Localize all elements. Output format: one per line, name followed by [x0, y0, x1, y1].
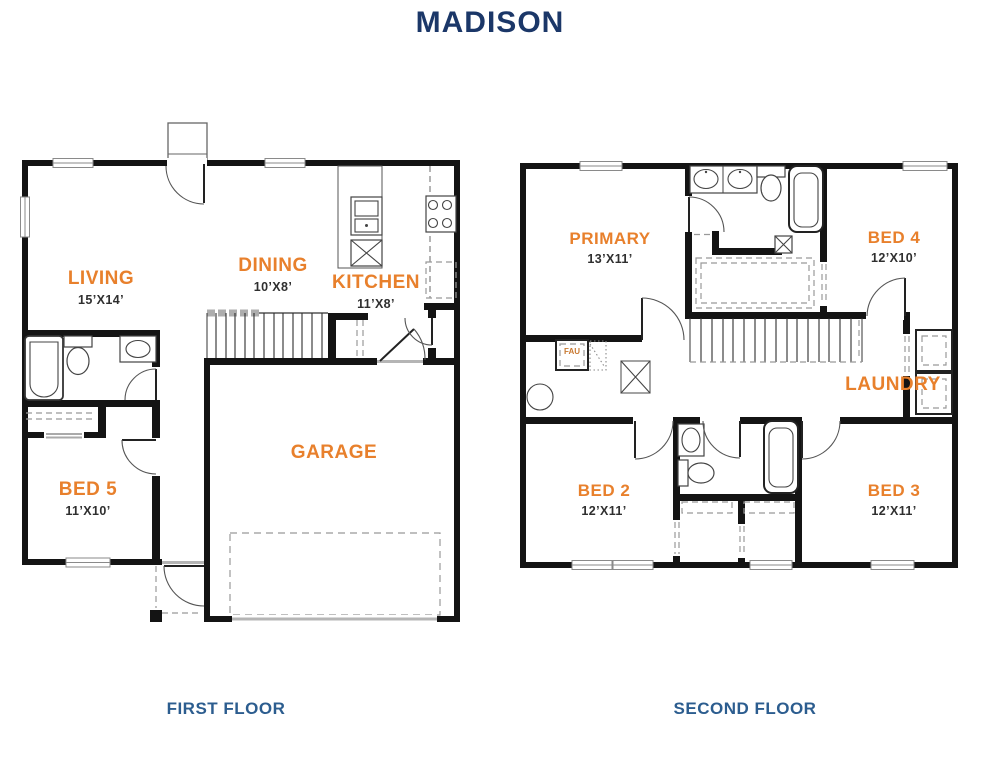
room-label-bed5: BED 5 11’X10’	[8, 479, 168, 518]
sink-icon	[678, 424, 704, 456]
bed2-door	[635, 421, 673, 459]
primary-door	[642, 298, 684, 340]
room-dims: 15’X14’	[21, 293, 181, 307]
bath-door	[125, 369, 156, 400]
room-label-living: LIVING 15’X14’	[21, 268, 181, 307]
room-name: BED 3	[814, 481, 974, 501]
room-label-bed2: BED 2 12’X11’	[524, 481, 684, 518]
garage-door	[232, 615, 437, 624]
room-label-primary: PRIMARY 13’X11’	[530, 229, 690, 266]
toilet-icon	[64, 336, 92, 375]
washer-icon	[916, 330, 952, 371]
fau-label: FAU	[556, 347, 588, 356]
room-name: LIVING	[21, 268, 181, 290]
hall-closet-shelves	[26, 413, 96, 419]
bed3-door	[802, 421, 840, 459]
bed4-door	[867, 278, 905, 316]
room-dims: 13’X11’	[530, 252, 690, 266]
room-name: KITCHEN	[296, 272, 456, 294]
stairs-second-floor	[690, 318, 862, 362]
attic-access-icon	[775, 236, 792, 253]
room-name: GARAGE	[254, 442, 414, 464]
room-name: LAUNDRY	[813, 374, 973, 396]
room-label-bed3: BED 3 12’X11’	[814, 481, 974, 518]
primary-bath-door	[689, 197, 724, 232]
bathtub-icon	[25, 336, 63, 400]
hall-bath-door	[703, 421, 740, 458]
room-dims: 12’X11’	[814, 504, 974, 518]
room-name: PRIMARY	[530, 229, 690, 249]
sink-icon	[120, 336, 156, 362]
plan-title: MADISON	[0, 6, 980, 40]
skylight-icon	[621, 361, 650, 393]
toilet-icon	[757, 166, 785, 201]
double-vanity-icon	[690, 166, 757, 193]
patio-door	[164, 566, 204, 606]
garage-parking-outline	[230, 533, 440, 615]
front-door	[166, 164, 204, 204]
bathtub-icon	[764, 421, 798, 493]
floor-plan-canvas: MADISON LIVING 15’X14’ DINING 10’X8’ KIT…	[0, 0, 1000, 780]
first-floor-plan	[21, 123, 461, 624]
room-dims: 12’X10’	[814, 251, 974, 265]
first-floor-walls	[22, 158, 460, 622]
room-label-garage: GARAGE	[254, 442, 414, 464]
caption-second-floor: SECOND FLOOR	[645, 699, 845, 719]
garage-entry-door	[380, 329, 425, 361]
caption-first-floor: FIRST FLOOR	[126, 699, 326, 719]
room-dims: 11’X10’	[8, 504, 168, 518]
room-name: BED 5	[8, 479, 168, 501]
room-label-kitchen: KITCHEN 11’X8’	[296, 272, 456, 311]
pantry-door	[405, 318, 432, 345]
room-name: BED 2	[524, 481, 684, 501]
stove-icon	[426, 196, 456, 232]
room-label-bed4: BED 4 12’X10’	[814, 228, 974, 265]
primary-closet-rods	[696, 258, 814, 308]
ceiling-light-icon	[527, 384, 553, 410]
room-label-laundry: LAUNDRY	[813, 374, 973, 396]
kitchen-island	[338, 166, 382, 268]
bed5-door	[122, 440, 156, 474]
entry-stoop	[168, 123, 207, 161]
room-dims: 11’X8’	[296, 297, 456, 311]
room-dims: 12’X11’	[524, 504, 684, 518]
room-name: BED 4	[814, 228, 974, 248]
patio-outline	[156, 566, 202, 613]
bathtub-icon	[789, 166, 823, 232]
